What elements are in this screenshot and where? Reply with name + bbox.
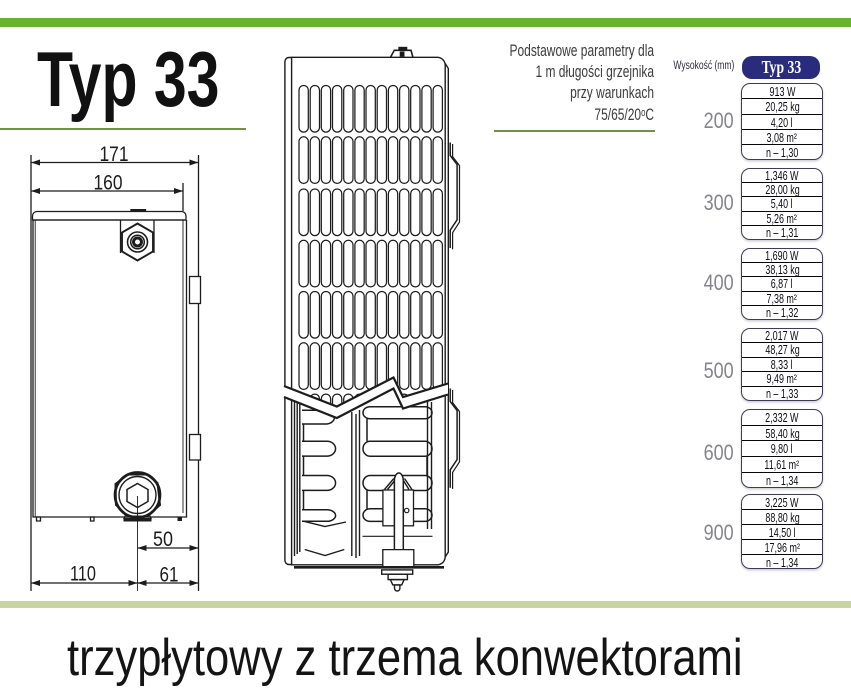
svg-text:61: 61 [160,564,179,587]
svg-text:160: 160 [94,172,123,195]
svg-text:171: 171 [100,143,129,166]
svg-text:50: 50 [153,528,173,551]
svg-text:110: 110 [70,563,96,586]
